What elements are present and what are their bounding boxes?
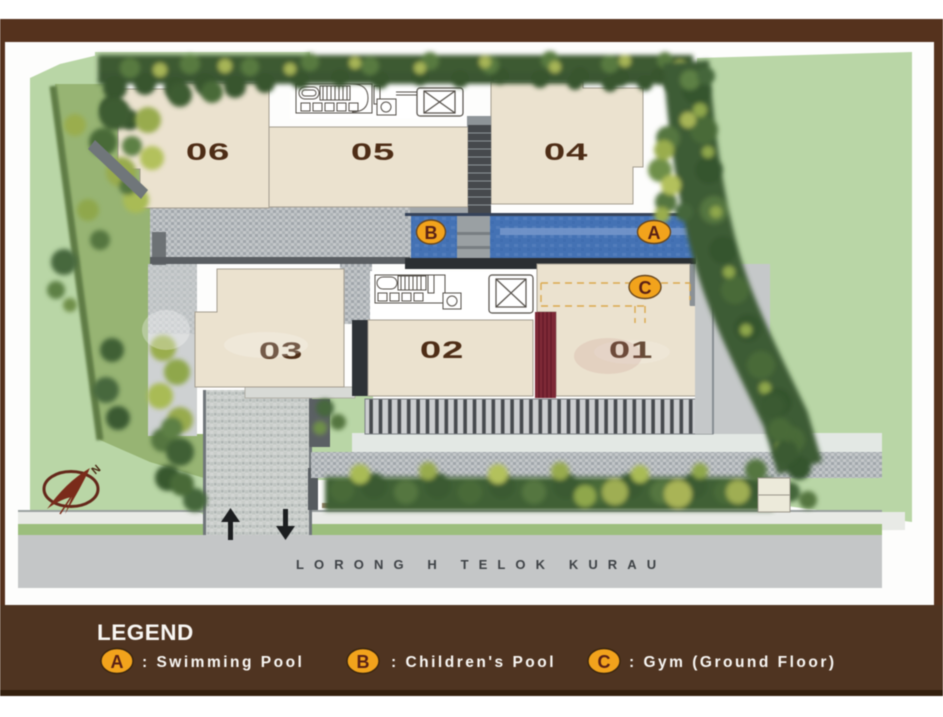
svg-text:B: B [357,652,370,672]
svg-text:: Gym (Ground Floor): : Gym (Ground Floor) [629,654,837,671]
svg-text:02: 02 [420,336,464,363]
svg-text:06: 06 [186,138,230,165]
svg-text:C: C [639,278,652,298]
svg-text:C: C [598,652,611,672]
svg-text:B: B [425,223,438,243]
svg-text:: Swimming Pool: : Swimming Pool [142,654,304,671]
svg-text:A: A [111,652,124,672]
svg-text:A: A [648,223,661,243]
svg-text:: Children's Pool: : Children's Pool [391,654,556,671]
svg-text:LEGEND: LEGEND [97,620,194,645]
svg-text:05: 05 [351,138,395,165]
svg-text:LORONG H TELOK KURAU: LORONG H TELOK KURAU [296,557,666,572]
svg-text:04: 04 [544,138,588,165]
